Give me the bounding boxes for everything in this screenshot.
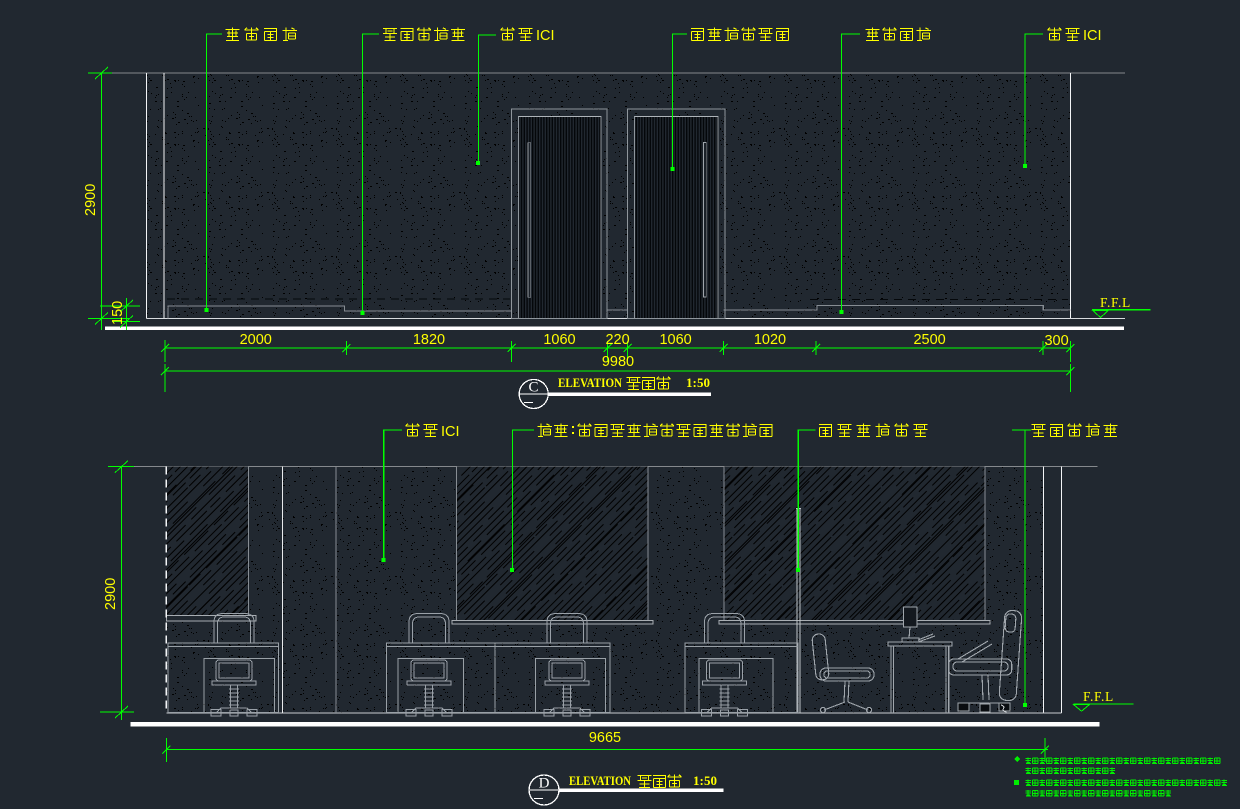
svg-text:300: 300 [1044, 333, 1068, 349]
svg-text:1:50: 1:50 [693, 773, 717, 788]
svg-text:9665: 9665 [589, 730, 621, 746]
svg-text:2000: 2000 [240, 332, 272, 348]
svg-text:ICI: ICI [536, 28, 555, 44]
svg-text:9980: 9980 [602, 354, 634, 370]
svg-text:ICI: ICI [1083, 28, 1102, 44]
svg-text:ELEVATION: ELEVATION [569, 774, 631, 788]
svg-text:220: 220 [605, 332, 629, 348]
svg-text:2900: 2900 [83, 184, 99, 216]
svg-text:1020: 1020 [754, 332, 786, 348]
svg-text:D: D [539, 776, 550, 792]
svg-text:1060: 1060 [659, 332, 691, 348]
svg-text:F.F.L: F.F.L [1083, 689, 1114, 704]
svg-text:ELEVATION: ELEVATION [558, 376, 622, 390]
svg-text:C: C [528, 380, 538, 396]
svg-text:F.F.L: F.F.L [1100, 295, 1131, 310]
svg-text:2500: 2500 [913, 332, 945, 348]
svg-text:1060: 1060 [543, 332, 575, 348]
svg-text:2900: 2900 [103, 578, 119, 610]
svg-text:150: 150 [110, 301, 126, 325]
svg-text:1820: 1820 [413, 332, 445, 348]
svg-text:1:50: 1:50 [686, 375, 710, 390]
svg-text:ICI: ICI [441, 424, 460, 440]
